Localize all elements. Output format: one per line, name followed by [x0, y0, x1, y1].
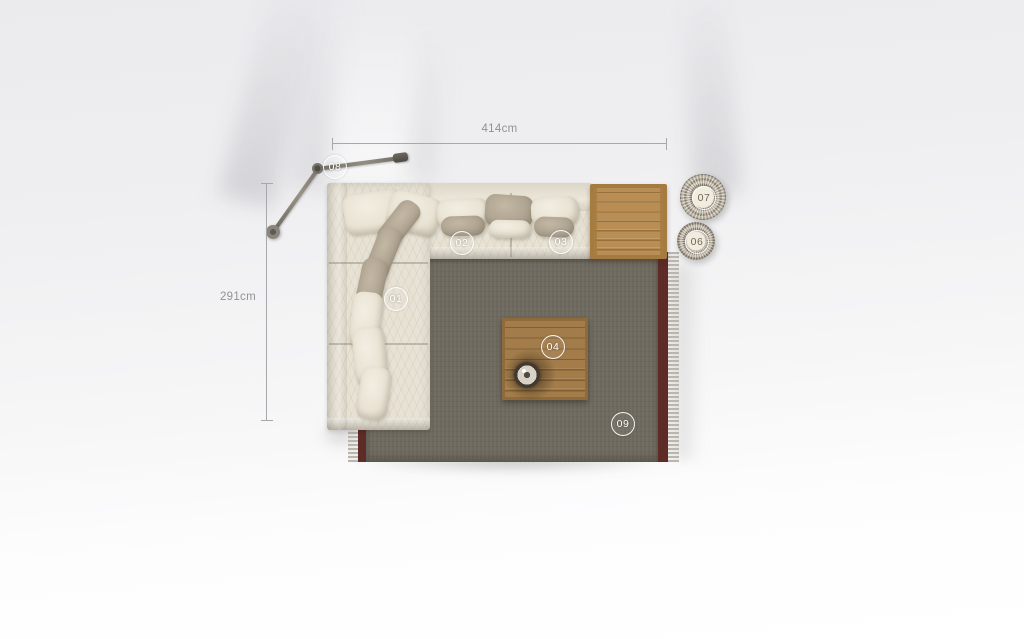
dimension-width-label: 414cm [332, 123, 667, 135]
marker-01[interactable]: 01 [384, 287, 408, 311]
dimension-height-line [266, 183, 267, 421]
rug-side-shadow [676, 265, 702, 460]
dimension-width-line [332, 143, 667, 144]
shadow-streak [405, 29, 445, 181]
marker-03[interactable]: 03 [549, 230, 573, 254]
lamp-arm [272, 167, 320, 233]
coffee-table[interactable] [502, 318, 588, 400]
pillow [489, 220, 531, 239]
lamp-joint [312, 163, 323, 174]
sofa-front-edge [327, 418, 430, 430]
marker-06[interactable]: 06 [685, 230, 709, 254]
marker-02[interactable]: 02 [450, 231, 474, 255]
floorplan-canvas: 414cm 291cm 01 02 03 04 06 07 08 09 [0, 0, 1024, 639]
lamp-base [266, 225, 280, 239]
rug-fringe-right [668, 252, 679, 462]
rug-border [658, 252, 668, 462]
marker-09[interactable]: 09 [611, 412, 635, 436]
marker-04[interactable]: 04 [541, 335, 565, 359]
dimension-height-label: 291cm [212, 291, 256, 303]
shadow-streak [679, 0, 742, 196]
lantern [514, 362, 540, 388]
marker-08[interactable]: 08 [323, 155, 347, 179]
side-table[interactable] [590, 184, 667, 259]
lamp-head [392, 152, 408, 163]
marker-07[interactable]: 07 [692, 186, 716, 210]
